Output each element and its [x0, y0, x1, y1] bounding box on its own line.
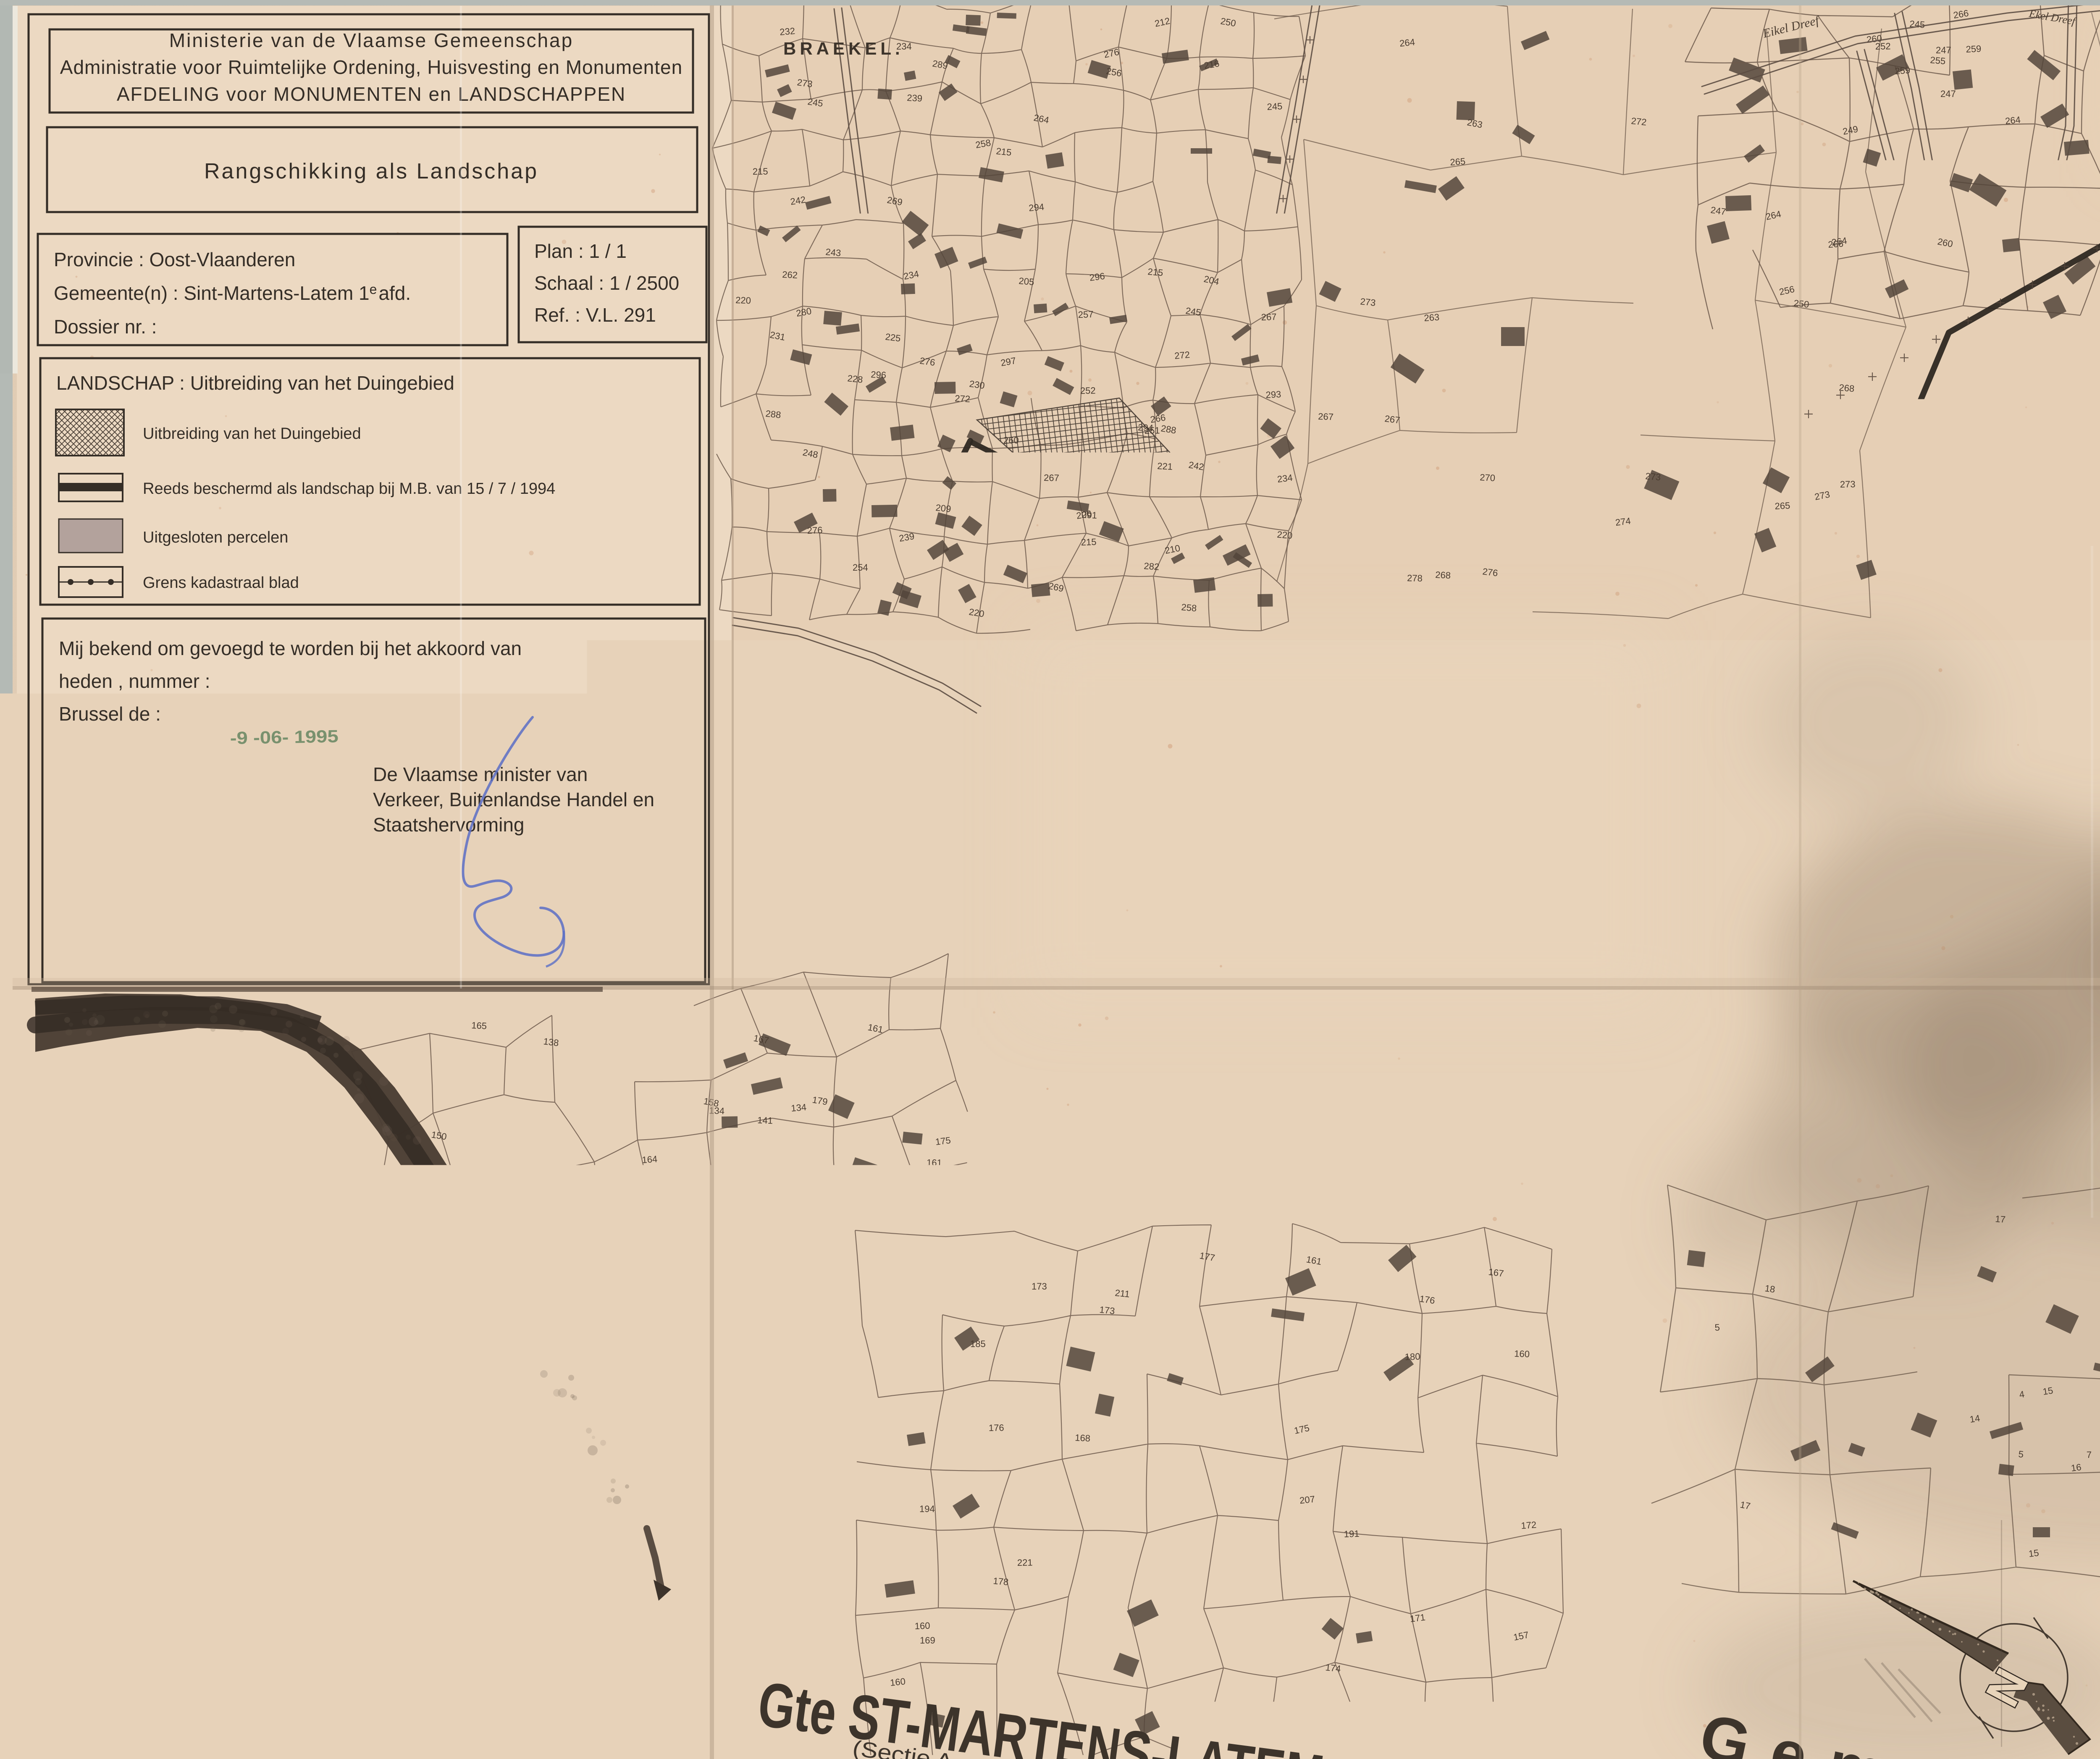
svg-text:BRAEKEL.: BRAEKEL.	[783, 39, 904, 58]
svg-text:LANDSCHAP : Uitbreiding van: LANDSCHAP : Uitbreiding van het Duingebi…	[56, 372, 454, 394]
svg-text:Brussel de :: Brussel de :	[59, 703, 161, 725]
svg-text:247: 247	[1710, 204, 1727, 217]
svg-text:265: 265	[1774, 500, 1790, 511]
svg-text:Ref. : V.L. 291: Ref. : V.L. 291	[534, 304, 656, 326]
svg-text:255: 255	[1930, 55, 1946, 66]
svg-text:207: 207	[1299, 1494, 1315, 1506]
svg-text:GARENNE.: GARENNE.	[1222, 1100, 1378, 1124]
svg-text:291: 291	[1081, 509, 1097, 521]
svg-text:273: 273	[796, 77, 813, 89]
svg-text:Sectie B 1eblad: Sectie B 1eblad	[1894, 726, 2082, 752]
svg-text:160: 160	[1514, 1348, 1530, 1359]
svg-text:134: 134	[790, 1102, 807, 1114]
svg-text:276: 276	[807, 525, 823, 536]
svg-text:Gemeente(n) : Sint-Martens-Lat: Gemeente(n) : Sint-Martens-Latem 1eafd.	[54, 282, 411, 304]
svg-text:267: 267	[1384, 413, 1400, 425]
svg-text:293: 293	[1265, 389, 1281, 400]
svg-text:206: 206	[1412, 1712, 1428, 1724]
svg-text:205: 205	[1018, 275, 1035, 287]
svg-text:15: 15	[2028, 1547, 2040, 1559]
svg-text:232: 232	[779, 26, 795, 37]
svg-text:Provincie : Oost-Vlaanderen: Provincie : Oost-Vlaanderen	[54, 249, 295, 270]
svg-text:228: 228	[1634, 929, 1649, 939]
svg-text:254: 254	[853, 562, 868, 573]
svg-text:213: 213	[1533, 941, 1549, 952]
svg-text:7: 7	[2087, 1450, 2092, 1460]
svg-text:15: 15	[2042, 1385, 2054, 1397]
svg-text:Uitgesloten percelen: Uitgesloten percelen	[143, 529, 288, 546]
svg-text:243: 243	[825, 246, 842, 258]
svg-text:252: 252	[1080, 385, 1096, 396]
svg-text:I E GRAND PAUVRE: I E GRAND PAUVRE	[1422, 223, 1708, 245]
svg-text:Dossier nr. :: Dossier nr. :	[54, 316, 157, 338]
svg-text:175: 175	[935, 1135, 951, 1147]
svg-text:176: 176	[989, 1422, 1004, 1433]
svg-text:296: 296	[1089, 271, 1105, 283]
svg-text:263: 263	[1424, 312, 1440, 323]
svg-text:221: 221	[1017, 1557, 1033, 1568]
svg-text:15: 15	[1963, 1028, 1974, 1040]
svg-text:232: 232	[1408, 1172, 1423, 1183]
svg-text:172: 172	[1521, 1519, 1537, 1531]
svg-text:180: 180	[1404, 1351, 1420, 1362]
svg-text:257: 257	[1078, 309, 1094, 320]
svg-text:161: 161	[927, 1157, 942, 1168]
svg-text:148: 148	[405, 1329, 421, 1341]
svg-text:16: 16	[2071, 1462, 2082, 1473]
svg-text:Verkeer, Buitenlandse Handel: Verkeer, Buitenlandse Handel en	[373, 789, 654, 810]
svg-text:194: 194	[919, 1504, 935, 1514]
svg-text:167: 167	[1488, 1266, 1504, 1279]
svg-text:278: 278	[1407, 573, 1423, 584]
svg-text:18: 18	[1764, 1283, 1776, 1295]
svg-text:267: 267	[1318, 411, 1334, 422]
svg-text:274: 274	[1615, 516, 1631, 528]
svg-text:185: 185	[970, 1339, 986, 1349]
svg-text:211: 211	[1114, 1287, 1130, 1300]
svg-text:Administratie voor Ruimtelijke: Administratie voor Ruimtelijke Ordening,…	[60, 56, 682, 78]
svg-text:164: 164	[745, 1294, 761, 1306]
svg-text:247: 247	[1940, 89, 1956, 99]
svg-text:174: 174	[1325, 1662, 1341, 1674]
svg-text:151: 151	[525, 1169, 541, 1180]
svg-text:265: 265	[1450, 156, 1466, 168]
svg-text:273: 273	[1645, 471, 1662, 482]
svg-text:215: 215	[1081, 537, 1097, 548]
svg-text:De Vlaamse minister van: De Vlaamse minister van	[373, 763, 588, 785]
svg-text:245: 245	[1185, 305, 1202, 318]
svg-text:165: 165	[471, 1020, 487, 1031]
svg-text:Grens kadastraal blad: Grens kadastraal blad	[143, 574, 299, 592]
svg-text:250: 250	[1793, 298, 1809, 310]
svg-text:Plan : 1 / 1: Plan : 1 / 1	[534, 240, 627, 262]
svg-text:173: 173	[1099, 1304, 1115, 1316]
svg-text:215: 215	[995, 146, 1012, 158]
svg-text:Mij bekend om gevoegd te: Mij bekend om gevoegd te worden bij het …	[59, 637, 522, 659]
svg-text:Sectie A 1eblad: Sectie A 1eblad	[1052, 730, 1238, 757]
svg-text:135: 135	[675, 1351, 691, 1363]
svg-text:Staatshervorming: Staatshervorming	[373, 814, 525, 836]
svg-text:215: 215	[1147, 266, 1164, 278]
svg-text:272: 272	[1174, 349, 1190, 361]
svg-text:264: 264	[2005, 114, 2021, 126]
svg-text:5: 5	[1714, 1322, 1720, 1333]
svg-text:262: 262	[782, 269, 798, 280]
svg-text:127: 127	[777, 1413, 793, 1425]
svg-text:294: 294	[1028, 202, 1045, 213]
svg-text:Rangschikking als Landschap: Rangschikking als Landschap	[204, 159, 538, 184]
svg-text:228: 228	[847, 373, 863, 385]
svg-text:176: 176	[1419, 1293, 1436, 1306]
svg-text:158: 158	[531, 1467, 547, 1479]
svg-text:Schaal : 1 / 2500: Schaal : 1 / 2500	[534, 272, 679, 294]
svg-text:150: 150	[907, 1190, 922, 1200]
svg-text:288: 288	[765, 408, 781, 420]
svg-text:272: 272	[955, 393, 971, 404]
svg-text:220: 220	[735, 295, 751, 306]
svg-text:164: 164	[642, 1153, 658, 1165]
svg-text:245: 245	[1267, 101, 1283, 112]
svg-text:276: 276	[919, 355, 936, 368]
svg-text:134: 134	[803, 1254, 819, 1265]
svg-text:15: 15	[2011, 1148, 2023, 1159]
svg-text:157: 157	[612, 1408, 627, 1419]
svg-text:268: 268	[1435, 569, 1451, 581]
svg-text:heden , nummer :: heden , nummer :	[59, 670, 210, 692]
svg-text:273: 273	[1360, 296, 1376, 308]
svg-text:264: 264	[1831, 235, 1848, 248]
svg-text:171: 171	[1410, 1612, 1426, 1624]
svg-text:245: 245	[1909, 18, 1925, 30]
svg-text:234: 234	[1277, 472, 1293, 485]
svg-text:174: 174	[517, 1263, 533, 1275]
svg-text:17: 17	[1739, 1499, 1751, 1511]
svg-text:156: 156	[472, 1406, 489, 1418]
svg-text:239: 239	[907, 92, 923, 104]
svg-text:AFDELING voor MONUMENTEN en: AFDELING voor MONUMENTEN en LANDSCHAPPEN	[117, 83, 626, 105]
svg-text:215: 215	[753, 166, 768, 177]
svg-text:170: 170	[793, 1177, 809, 1189]
svg-text:191: 191	[1046, 957, 1061, 968]
svg-text:5: 5	[2018, 1449, 2024, 1460]
svg-text:169: 169	[920, 1635, 935, 1646]
svg-text:16: 16	[2050, 1165, 2061, 1177]
svg-text:138: 138	[543, 1036, 559, 1048]
svg-text:270: 270	[1480, 472, 1496, 483]
svg-text:168: 168	[433, 1319, 450, 1331]
svg-text:230: 230	[969, 378, 985, 391]
svg-text:264: 264	[1399, 37, 1415, 49]
svg-text:247: 247	[1936, 45, 1951, 55]
svg-text:141: 141	[757, 1115, 773, 1126]
svg-text:Reeds beschermd als landsch: Reeds beschermd als landschap bij M.B. v…	[143, 480, 555, 498]
svg-text:Uitgesloten percelen: Uitgesloten percelen	[1815, 702, 1961, 720]
svg-text:245: 245	[807, 96, 824, 109]
svg-text:160: 160	[914, 1620, 930, 1631]
svg-text:273: 273	[1840, 479, 1856, 490]
svg-text:268: 268	[1839, 382, 1855, 394]
svg-text:Ministerie van de Vlaamse: Ministerie van de Vlaamse Gemeenschap	[169, 29, 573, 51]
svg-text:-9 -06- 1995: -9 -06- 1995	[230, 726, 339, 748]
svg-text:259: 259	[1966, 43, 1982, 55]
svg-text:Uitbreiding van het Duingeb: Uitbreiding van het Duingebied	[143, 425, 361, 443]
svg-text:S: S	[1415, 1156, 1421, 1166]
svg-text:272: 272	[1630, 115, 1647, 128]
svg-text:128: 128	[719, 1341, 735, 1353]
